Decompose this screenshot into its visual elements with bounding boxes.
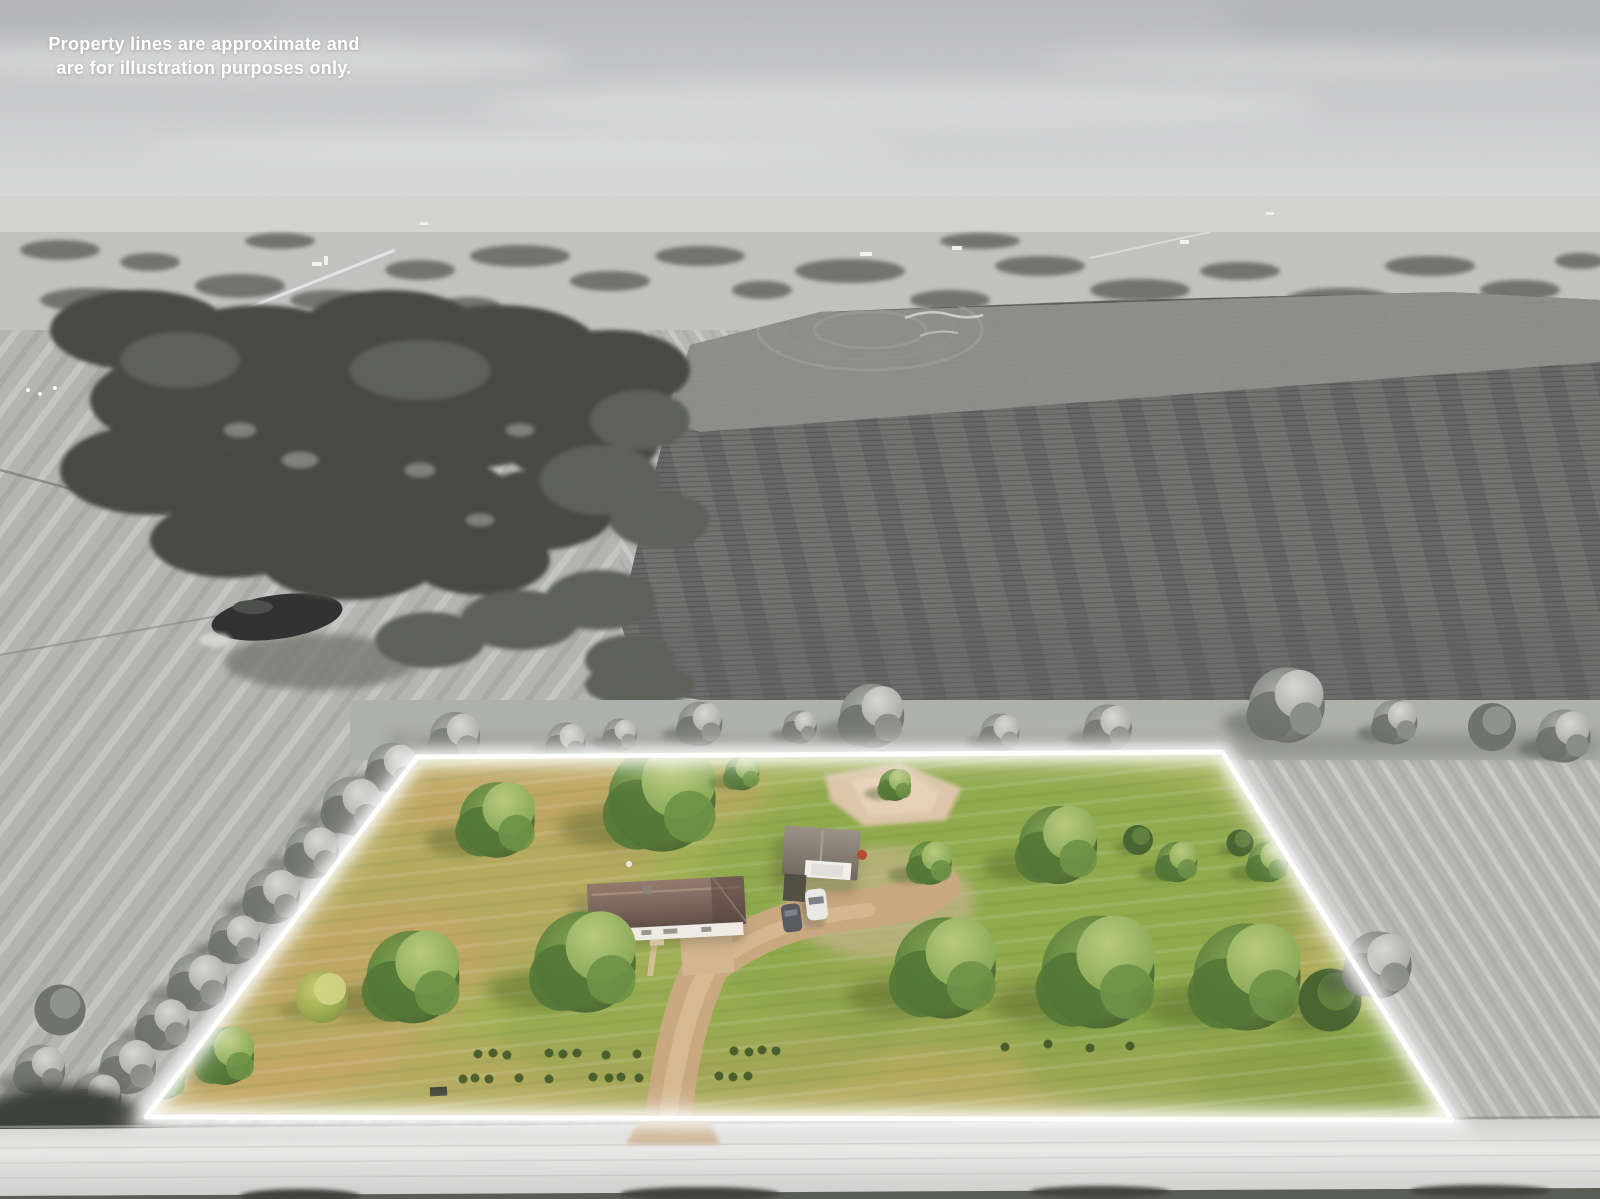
disclaimer-line-1: Property lines are approximate and — [38, 33, 370, 57]
film-grain — [0, 0, 1600, 1199]
disclaimer-text: Property lines are approximate and are f… — [38, 33, 370, 81]
disclaimer-line-2: are for illustration purposes only. — [38, 57, 370, 81]
scene-canvas — [0, 0, 1600, 1199]
aerial-photo: Property lines are approximate and are f… — [0, 0, 1600, 1199]
